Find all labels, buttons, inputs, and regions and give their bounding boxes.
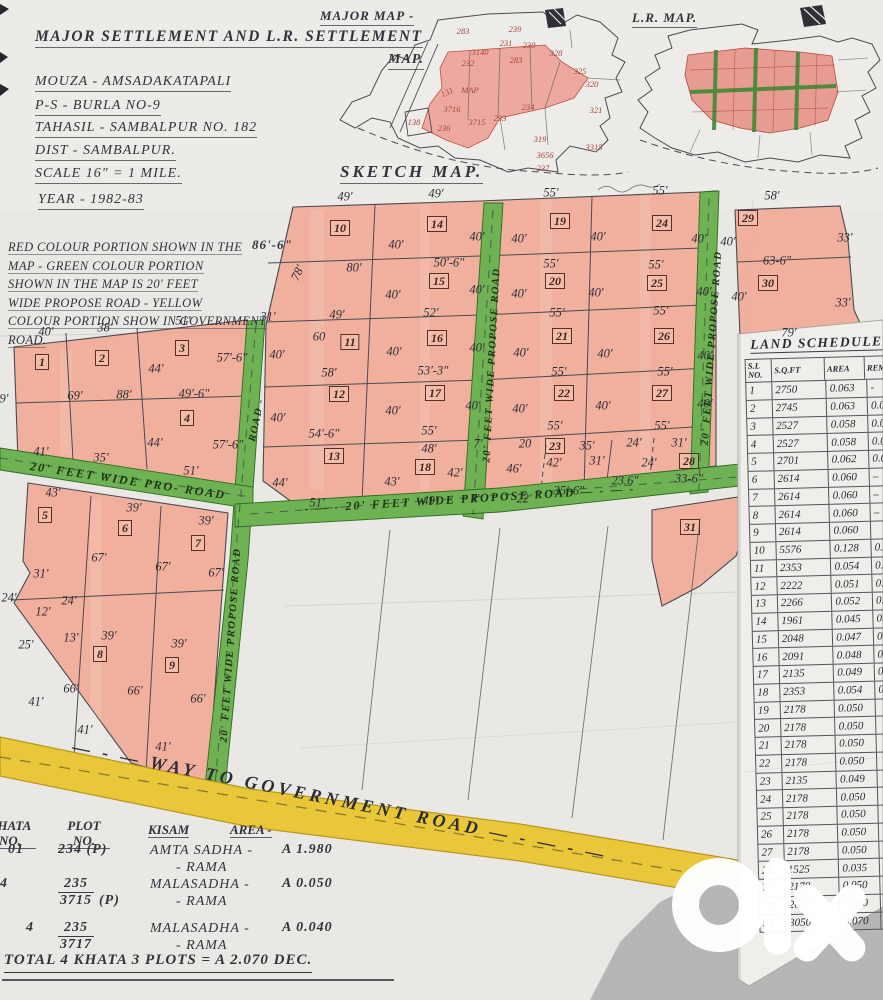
schedule-cell: 20 (755, 719, 781, 736)
schedule-cell: 2178 (784, 842, 839, 860)
schedule-cell: 0.050 (836, 752, 877, 770)
schedule-cell (878, 770, 883, 787)
schedule-cell: 2178 (782, 753, 837, 771)
schedule-cell: 18 (754, 684, 780, 701)
schedule-cell: 2222 (777, 576, 832, 594)
schedule-cell: 0.045 (833, 610, 874, 628)
schedule-cell: 0.050 (837, 788, 878, 806)
schedule-cell: 15 (753, 631, 779, 648)
schedule-cell: 0. (875, 681, 883, 698)
district-line: DIST - SAMBALPUR. (35, 143, 176, 161)
col-sqft: S.Q.FT (772, 358, 825, 381)
area-cell: A 0.040 (282, 920, 333, 936)
schedule-cell: 0.049 (837, 770, 878, 788)
schedule-cell: 0.049 (834, 664, 875, 682)
schedule-cell: 0.063 (827, 380, 868, 398)
schedule-cell: 2135 (779, 665, 834, 683)
schedule-cell: 0.0 (872, 575, 883, 592)
schedule-cell: 2527 (773, 416, 828, 434)
year-line: YEAR - 1982-83 (38, 192, 144, 210)
legend-note-line: SHOWN IN THE MAP IS 20' FEET (8, 275, 288, 294)
schedule-cell: 25 (757, 808, 783, 825)
schedule-cell (877, 752, 883, 769)
schedule-cell: – (871, 504, 883, 521)
schedule-cell (878, 787, 883, 804)
schedule-cell: 2048 (779, 629, 834, 647)
area-cell: A 0.050 (282, 876, 333, 892)
schedule-cell: 22 (756, 755, 782, 772)
map-title-line2: MAP. (388, 52, 424, 70)
land-schedule-table: LAND SCHEDULE S.L NO. S.Q.FT AREA REM 12… (744, 332, 883, 933)
ps-line: P-S - BURLA NO-9 (35, 98, 161, 116)
schedule-cell: 19 (755, 702, 781, 719)
schedule-cell: 0.050 (835, 699, 876, 717)
schedule-cell: 0.050 (836, 735, 877, 753)
schedule-cell: 0.052 (832, 593, 873, 611)
plot-number-cell: 2353717 (58, 920, 94, 953)
schedule-cell: 8 (749, 506, 775, 523)
schedule-cell: 0.0 (873, 610, 883, 627)
schedule-cell: 0.050 (835, 717, 876, 735)
legend-note-line: COLOUR PORTION SHOW IN GOVERNMENT (8, 312, 288, 331)
legend-note-line: RED COLOUR PORTION SHOWN IN THE (8, 238, 288, 257)
col-rem: REM (865, 356, 883, 378)
schedule-cell: 26 (758, 826, 784, 843)
schedule-cell (879, 841, 883, 858)
schedule-cell: 0.062 (828, 451, 869, 469)
schedule-cell: 17 (754, 666, 780, 683)
schedule-cell: 13 (752, 595, 778, 612)
schedule-cell (877, 734, 883, 751)
schedule-cell: 0.050 (838, 823, 879, 841)
map-title: MAJOR SETTLEMENT AND L.R. SETTLEMENT (35, 28, 423, 48)
schedule-cell: 0.0 (869, 450, 883, 467)
schedule-cell: 2266 (778, 594, 833, 612)
schedule-cell: 2614 (775, 505, 830, 523)
tahasil-line: TAHASIL - SAMBALPUR NO. 182 (35, 120, 257, 138)
schedule-cell: 21 (756, 737, 782, 754)
schedule-cell (878, 805, 883, 822)
hatched-box-icon (545, 8, 566, 28)
sketch-map-heading: SKETCH MAP. (340, 162, 483, 184)
schedule-cell: 16 (753, 648, 779, 665)
schedule-cell: 5 (748, 453, 774, 470)
schedule-cell: 11 (751, 560, 777, 577)
area-col-header: AREA - (230, 822, 272, 838)
schedule-cell: 0.048 (834, 646, 875, 664)
schedule-cell (876, 699, 883, 716)
schedule-cell: 0.050 (838, 806, 879, 824)
schedule-cell: – (870, 486, 883, 503)
schedule-cell: 2527 (773, 434, 828, 452)
schedule-cell: 0.060 (829, 486, 870, 504)
schedule-cell: 0.054 (835, 681, 876, 699)
total-underline (2, 979, 394, 981)
schedule-cell: 2178 (780, 700, 835, 718)
hatched-box-icon (800, 5, 826, 27)
col-area: AREA (825, 357, 866, 380)
schedule-cell: 10 (750, 542, 776, 559)
schedule-title: LAND SCHEDULE (750, 333, 883, 353)
schedule-cell: 0.058 (828, 415, 869, 433)
schedule-cell: 0.063 (827, 398, 868, 416)
schedule-cell: 0.0 (873, 592, 883, 609)
major-map-label: MAJOR MAP - (320, 8, 414, 26)
note-annotation: 86'-6" (252, 237, 293, 253)
schedule-cell: 2353 (780, 682, 835, 700)
schedule-cell: 0. (874, 628, 883, 645)
schedule-cell: 2614 (775, 487, 830, 505)
mouza-line: MOUZA - AMSADAKATAPALI (35, 74, 231, 92)
schedule-cell: 0.128 (831, 539, 872, 557)
schedule-cell: 0.13 (871, 539, 883, 556)
legend-note-line: ROAD. (8, 331, 288, 350)
schedule-cell: 1 (746, 382, 772, 399)
schedule-cell: 2178 (781, 718, 836, 736)
schedule-cell: 2178 (784, 824, 839, 842)
khata-number: 4 (0, 876, 8, 892)
schedule-cell: 12 (751, 577, 777, 594)
plots-29-30-area (735, 206, 860, 336)
plot-number-cell: 234 (P) (58, 842, 107, 858)
schedule-cell: 2614 (774, 470, 829, 488)
scale-line: SCALE 16" = 1 MILE. (35, 166, 182, 184)
schedule-cell: 0.058 (828, 433, 869, 451)
olx-logo-l (764, 858, 791, 955)
legend-note-line: WIDE PROPOSE ROAD - YELLOW (8, 294, 288, 313)
schedule-cell: 0.0 (868, 415, 883, 432)
schedule-cell (876, 716, 883, 733)
schedule-cell: 5576 (776, 541, 831, 559)
schedule-cell: 9 (750, 524, 776, 541)
schedule-cell: 0.051 (832, 575, 873, 593)
schedule-cell: 0. (875, 663, 883, 680)
schedule-cell (871, 521, 883, 538)
schedule-cell: 0.050 (839, 841, 880, 859)
schedule-cell: 24 (757, 790, 783, 807)
kisam-col-header: KISAM (148, 822, 189, 838)
schedule-cell: 2353 (777, 558, 832, 576)
schedule-cell: 0. (874, 646, 883, 663)
area-cell: A 1.980 (282, 842, 333, 858)
schedule-cell: 0.0 (869, 433, 883, 450)
schedule-cell: 6 (749, 471, 775, 488)
schedule-cell: 2091 (779, 647, 834, 665)
schedule-cell: 2750 (772, 381, 827, 399)
schedule-cell: 1961 (778, 612, 833, 630)
schedule-cell: 0.035 (839, 859, 880, 877)
legend-note-line: MAP - GREEN COLOUR PORTION (8, 257, 288, 276)
schedule-cell: 0.0 (872, 557, 883, 574)
schedule-cell: – (870, 468, 883, 485)
schedule-cell (879, 823, 883, 840)
schedule-cell: 0.06 (868, 397, 883, 414)
schedule-cell: 0.054 (831, 557, 872, 575)
schedule-cell: 0.060 (830, 504, 871, 522)
schedule-cell: 14 (752, 613, 778, 630)
schedule-cell: 0.060 (829, 469, 870, 487)
schedule-cell: 2178 (783, 807, 838, 825)
total-line: TOTAL 4 KHATA 3 PLOTS = A 2.070 DEC. (4, 952, 312, 973)
khata-number: 4 (26, 920, 34, 936)
schedule-header-row: S.L NO. S.Q.FT AREA REM (745, 355, 883, 383)
col-slno: S.L NO. (746, 359, 773, 382)
lr-map-label: L.R. MAP. (632, 10, 697, 28)
schedule-cell: 2135 (782, 771, 837, 789)
schedule-cell: 2178 (783, 789, 838, 807)
schedule-cell: 4 (748, 436, 774, 453)
schedule-cell: 2178 (781, 736, 836, 754)
khata-number: 01 (8, 842, 24, 858)
schedule-cell: 7 (749, 489, 775, 506)
schedule-rows: 127500.063-227450.0630.06325270.0580.042… (745, 379, 883, 933)
schedule-cell: 23 (756, 773, 782, 790)
olx-logo-o (672, 858, 766, 952)
schedule-cell: 0.047 (833, 628, 874, 646)
schedule-cell: 2 (747, 400, 773, 417)
schedule-cell: 0.060 (830, 522, 871, 540)
schedule-cell: 2701 (774, 452, 829, 470)
scanned-land-map-photo: MAJOR SETTLEMENT AND L.R. SETTLEMENT MAP… (0, 0, 883, 1000)
schedule-cell: 1525 (785, 860, 840, 878)
schedule-cell: 2614 (776, 523, 831, 541)
schedule-cell: 3 (747, 418, 773, 435)
schedule-cell: 2745 (773, 399, 828, 417)
schedule-cell: - (867, 379, 883, 396)
colour-legend-notes: RED COLOUR PORTION SHOWN IN THEMAP - GRE… (8, 238, 288, 349)
plot-number-cell: 2353715(P) (58, 876, 120, 909)
